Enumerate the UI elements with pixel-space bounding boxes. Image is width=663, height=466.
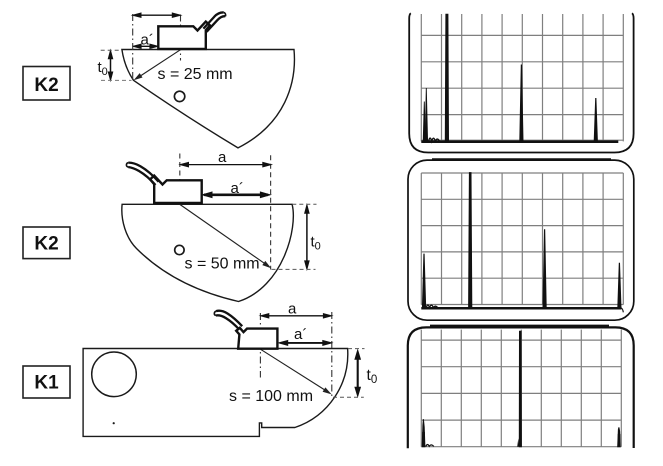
svg-text:a´: a´ — [141, 31, 154, 48]
svg-text:a: a — [218, 149, 227, 166]
svg-text:K2: K2 — [34, 75, 58, 96]
svg-text:a´: a´ — [231, 180, 244, 197]
svg-text:a´: a´ — [294, 326, 307, 343]
svg-text:K1: K1 — [34, 373, 59, 394]
svg-text:K2: K2 — [34, 234, 58, 255]
svg-text:s = 50 mm: s = 50 mm — [185, 256, 260, 273]
svg-text:s = 100 mm: s = 100 mm — [229, 388, 313, 405]
svg-text:s = 25 mm: s = 25 mm — [158, 66, 233, 83]
svg-text:a: a — [288, 301, 297, 318]
